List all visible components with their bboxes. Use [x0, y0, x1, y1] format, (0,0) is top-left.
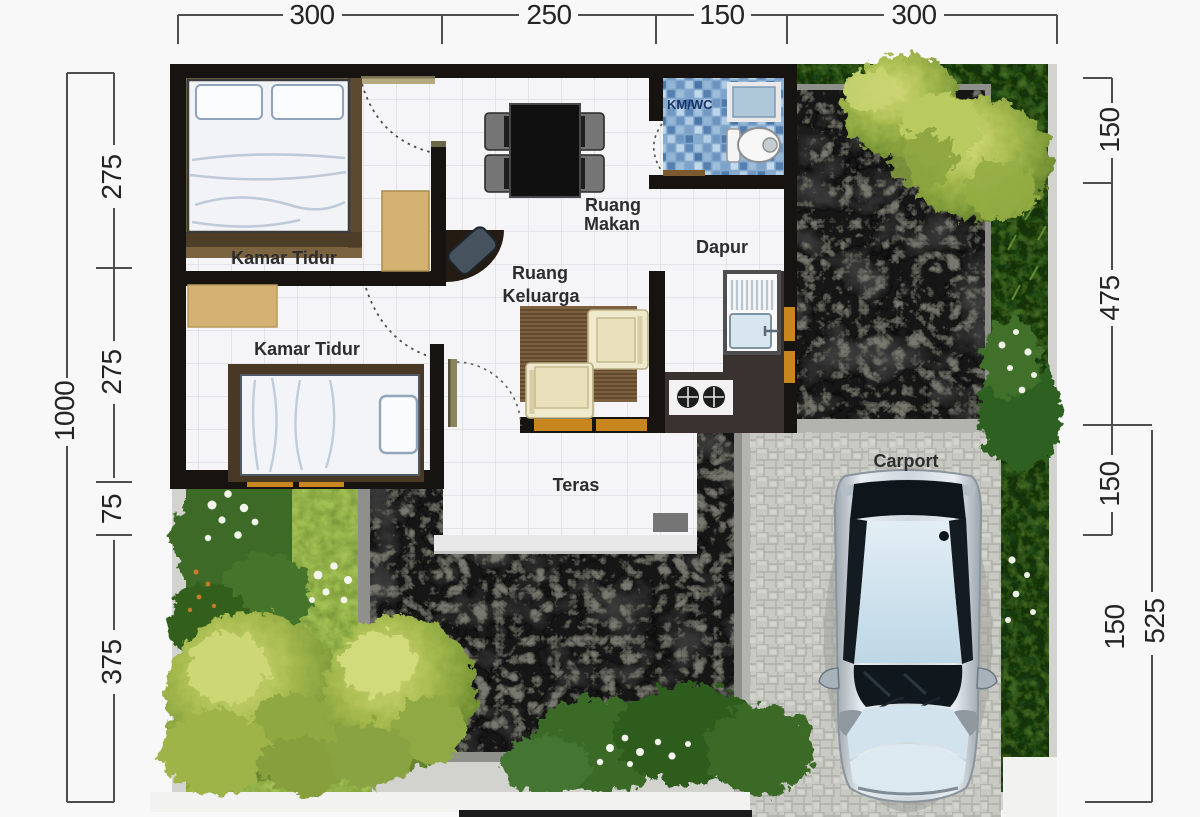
svg-text:Kamar Tidur: Kamar Tidur: [231, 248, 337, 268]
svg-text:250: 250: [526, 0, 571, 30]
svg-text:Kamar Tidur: Kamar Tidur: [254, 339, 360, 359]
svg-text:275: 275: [96, 349, 127, 394]
svg-text:Ruang: Ruang: [585, 195, 641, 215]
svg-text:150: 150: [699, 0, 744, 30]
svg-text:KM/WC: KM/WC: [667, 97, 713, 112]
svg-text:150: 150: [1099, 604, 1130, 649]
svg-text:525: 525: [1139, 598, 1170, 643]
svg-text:150: 150: [1094, 107, 1125, 152]
svg-text:Dapur: Dapur: [696, 237, 748, 257]
svg-text:275: 275: [96, 154, 127, 199]
svg-text:300: 300: [289, 0, 334, 30]
svg-text:150: 150: [1094, 461, 1125, 506]
svg-text:375: 375: [96, 639, 127, 684]
svg-text:Keluarga: Keluarga: [502, 286, 580, 306]
svg-text:1000: 1000: [49, 381, 80, 441]
svg-text:Teras: Teras: [553, 475, 600, 495]
svg-text:Ruang: Ruang: [512, 263, 568, 283]
svg-text:300: 300: [891, 0, 936, 30]
svg-text:Makan: Makan: [584, 214, 640, 234]
svg-text:75: 75: [96, 494, 127, 524]
svg-text:Carport: Carport: [873, 451, 938, 471]
svg-text:475: 475: [1094, 275, 1125, 320]
